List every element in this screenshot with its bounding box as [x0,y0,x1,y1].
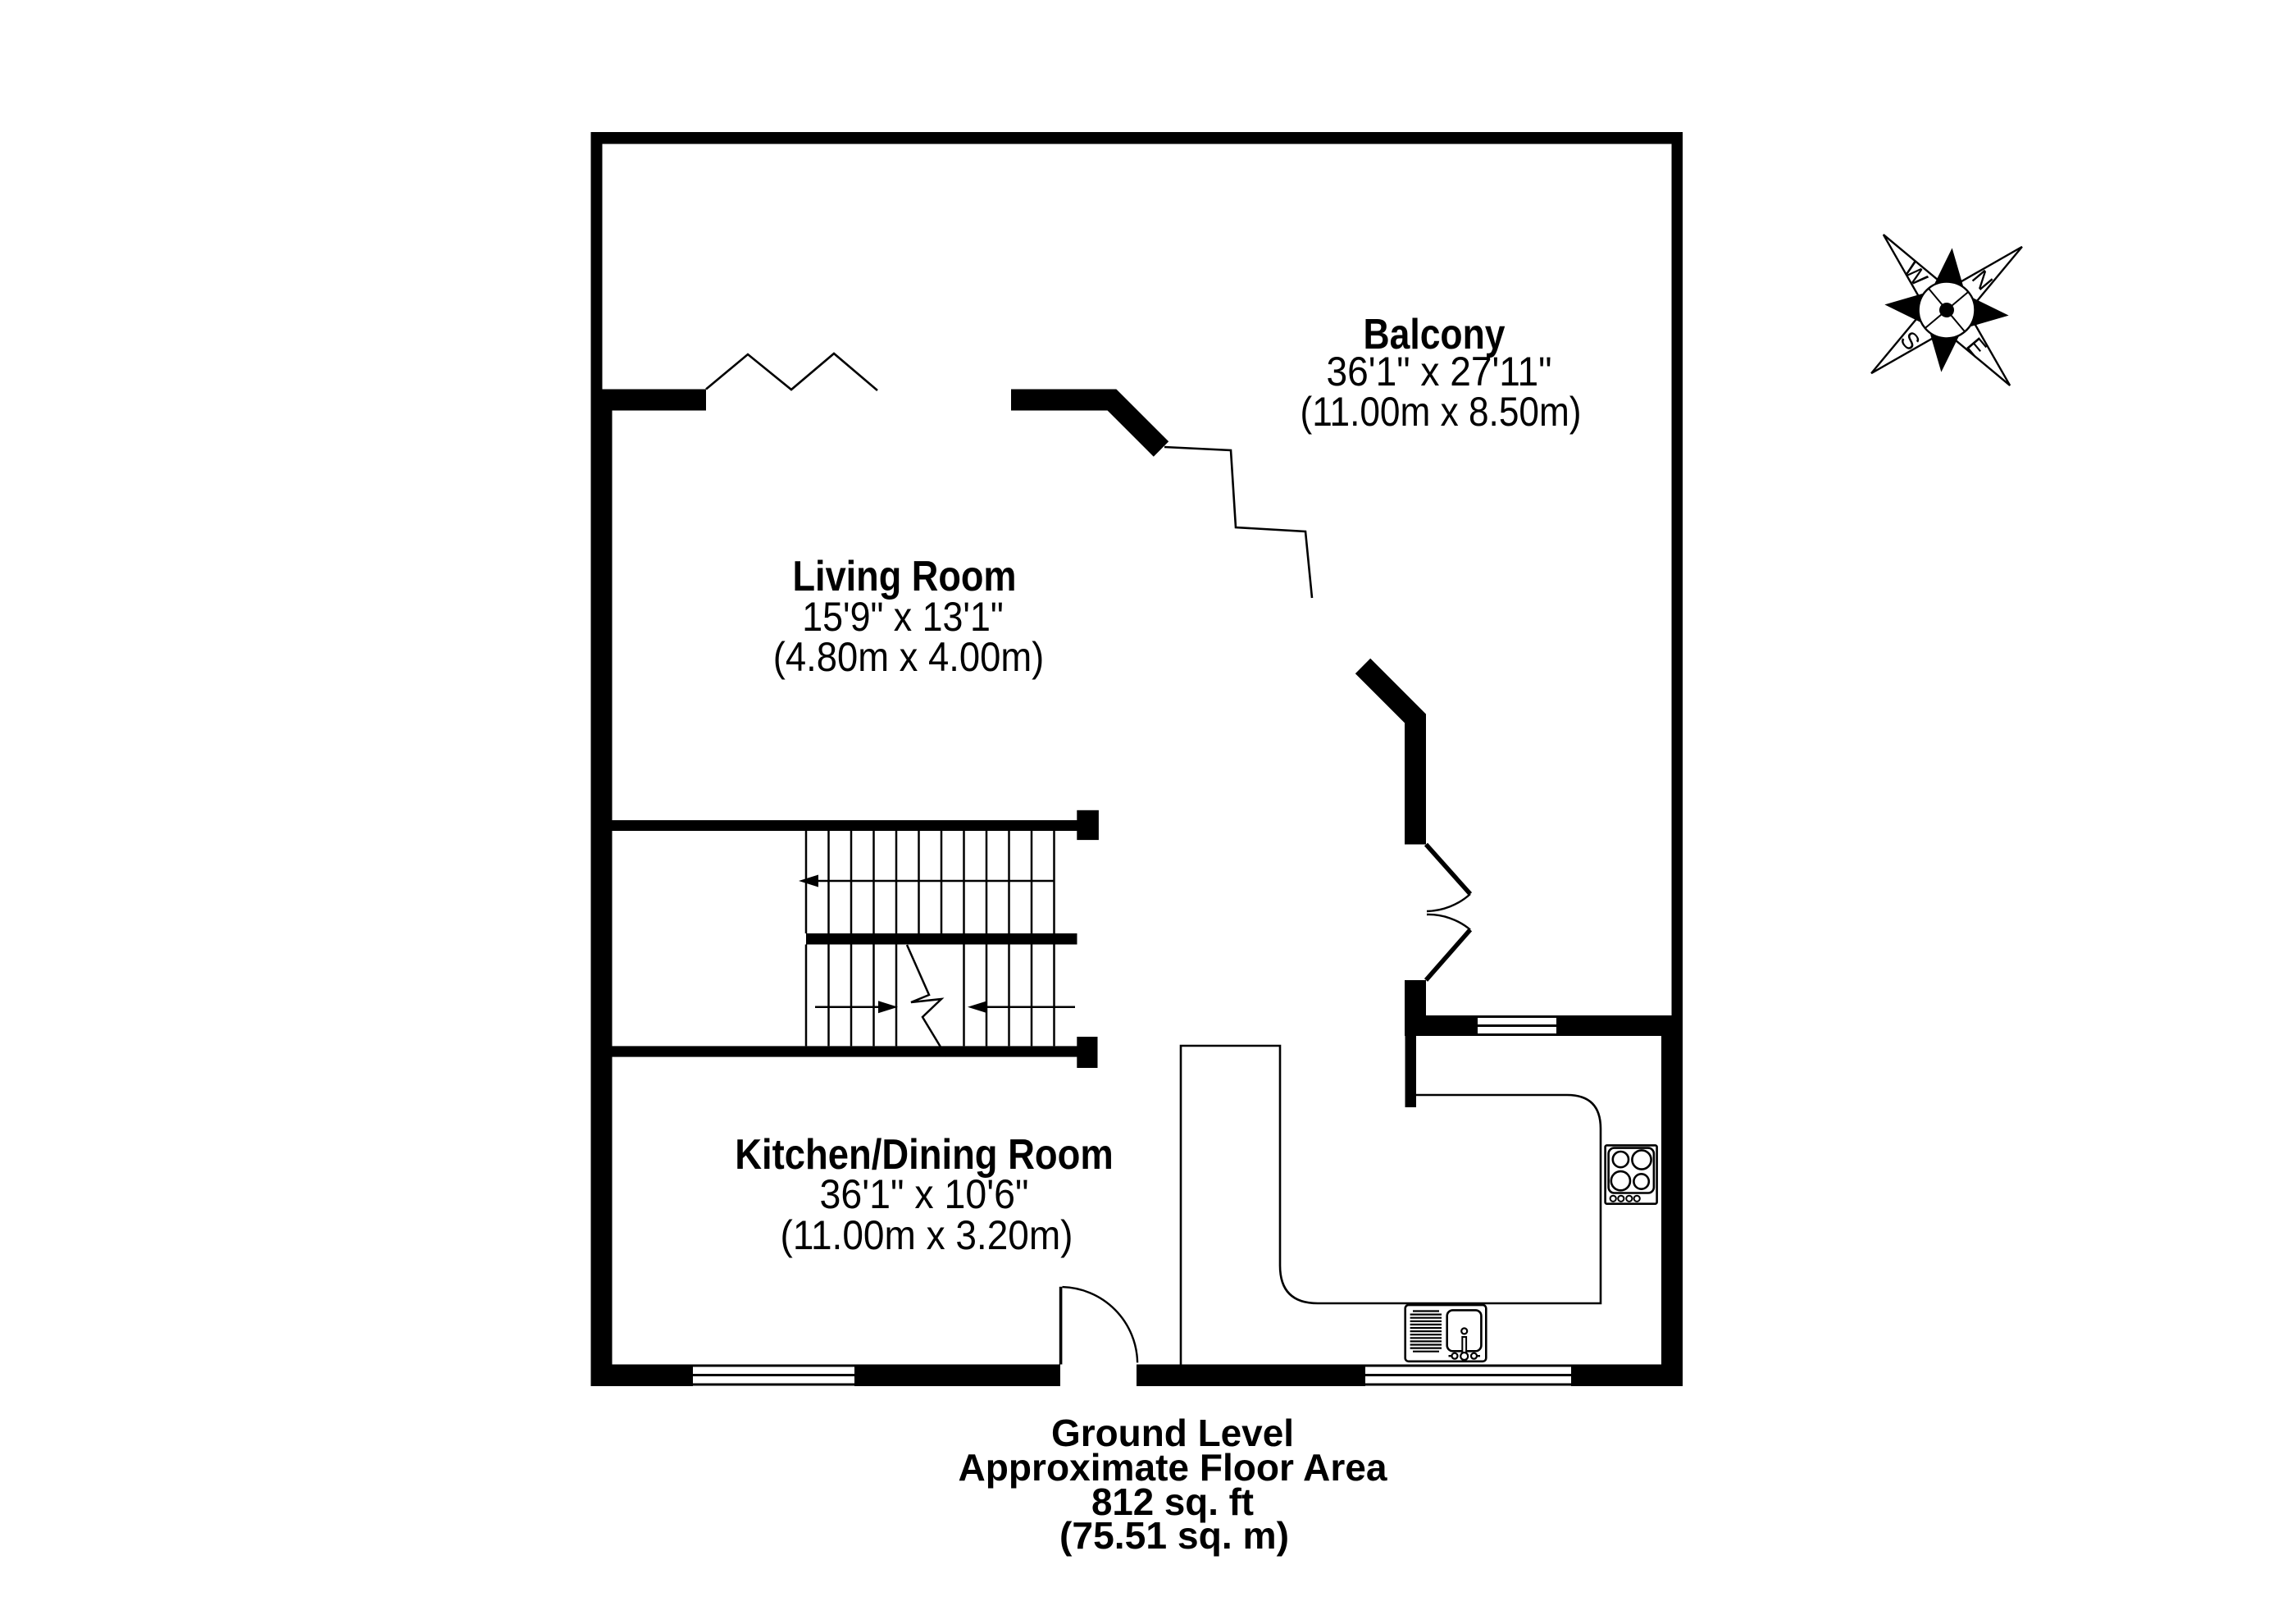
svg-text:15'9" x 13'1": 15'9" x 13'1" [802,594,1004,640]
svg-text:(4.80m x 4.00m): (4.80m x 4.00m) [773,634,1045,680]
svg-text:(11.00m x 3.20m): (11.00m x 3.20m) [781,1212,1073,1258]
svg-text:(11.00m x 8.50m): (11.00m x 8.50m) [1301,389,1582,435]
svg-text:(75.51 sq. m): (75.51 sq. m) [1059,1514,1289,1557]
svg-text:36'1" x 27'11": 36'1" x 27'11" [1327,349,1552,395]
svg-text:36'1" x 10'6": 36'1" x 10'6" [820,1171,1029,1217]
